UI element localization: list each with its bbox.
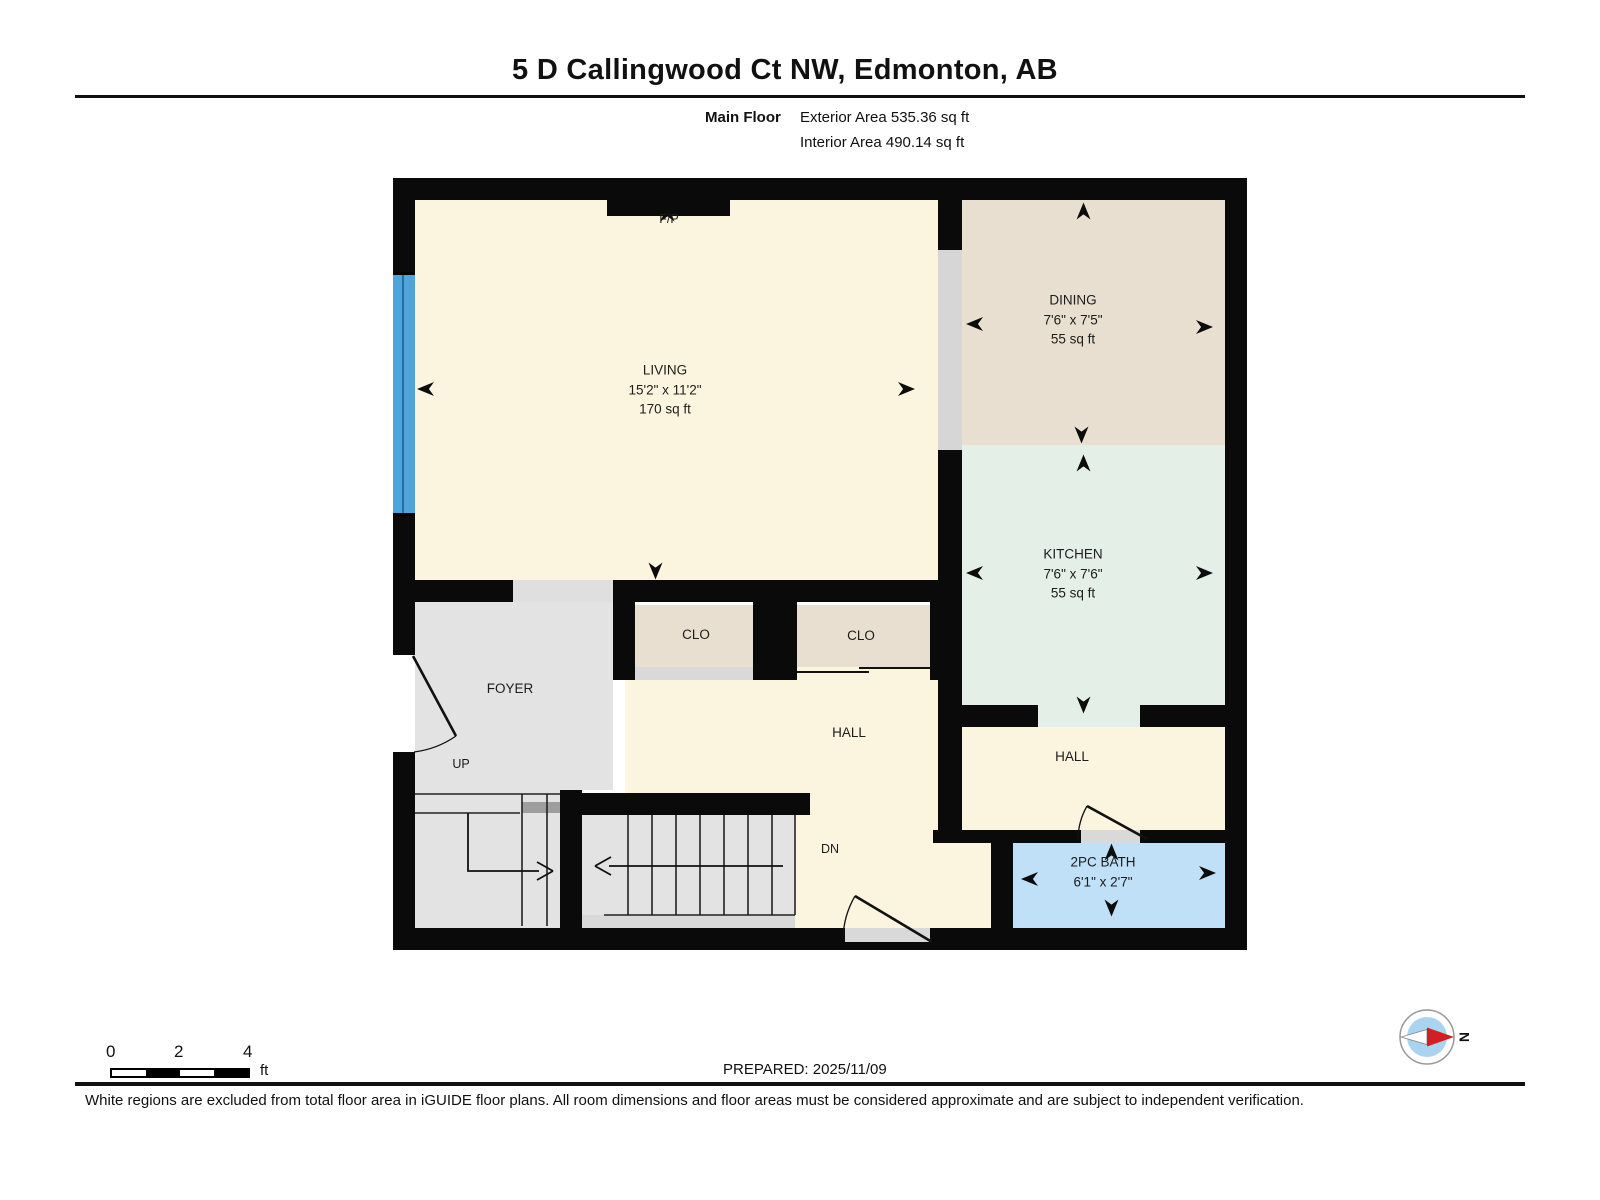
- wall-segment: [1140, 705, 1225, 727]
- stair-landing-strip: [522, 802, 560, 813]
- scale-tick-0: 0: [106, 1042, 115, 1062]
- floorplan-page: 5 D Callingwood Ct NW, Edmonton, AB Main…: [0, 0, 1600, 1200]
- room-dims: 15'2" x 11'2": [628, 380, 701, 400]
- window-pane-line: [402, 275, 404, 513]
- room-dims: 7'6" x 7'5": [1043, 310, 1102, 330]
- compass-north-label: N: [1456, 1032, 1472, 1042]
- room-area: 55 sq ft: [1043, 584, 1102, 604]
- kitchen-opening: [1038, 705, 1140, 727]
- room-name: 2PC BATH: [1070, 852, 1135, 872]
- back-door-threshold: [845, 928, 930, 942]
- room-label-foyer: FOYER: [487, 679, 534, 699]
- room-label-living: LIVING 15'2" x 11'2" 170 sq ft: [628, 361, 701, 420]
- window-icon: [393, 272, 415, 516]
- wall-segment: [393, 928, 1247, 950]
- closet1-door-track: [635, 667, 753, 680]
- floor-label: Main Floor: [705, 109, 781, 126]
- wall-segment: [930, 602, 962, 680]
- room-label-hall-center: HALL: [832, 723, 866, 743]
- room-label-dining: DINING 7'6" x 7'5" 55 sq ft: [1043, 291, 1102, 350]
- scale-segment: [112, 1070, 146, 1076]
- room-label-closet2: CLO: [847, 626, 875, 646]
- wall-segment: [393, 178, 1247, 200]
- half-wall-opening: [938, 250, 962, 450]
- wall-segment: [393, 580, 513, 602]
- room-hall-right-area: [962, 727, 1225, 830]
- compass-icon: N: [1393, 1003, 1485, 1071]
- room-area: 170 sq ft: [628, 400, 701, 420]
- room-area: 55 sq ft: [1043, 330, 1102, 350]
- wall-segment: [613, 580, 625, 680]
- scale-tick-4: 4: [243, 1042, 252, 1062]
- bath-door-threshold: [1081, 830, 1140, 843]
- scale-unit: ft: [260, 1062, 268, 1079]
- footer-divider: [75, 1082, 1525, 1086]
- room-dims: 7'6" x 7'6": [1043, 564, 1102, 584]
- scale-segment: [146, 1070, 180, 1076]
- room-label-bath: 2PC BATH 6'1" x 2'7": [1070, 852, 1135, 891]
- room-label-kitchen: KITCHEN 7'6" x 7'6" 55 sq ft: [1043, 545, 1102, 604]
- room-hall-pocket-area: [938, 843, 991, 928]
- entry-door-opening: [393, 655, 415, 752]
- room-dims: 6'1" x 2'7": [1070, 872, 1135, 892]
- wall-segment: [1140, 830, 1225, 843]
- stairs-up-label: UP: [452, 755, 469, 773]
- wall-segment: [625, 602, 635, 680]
- wall-segment: [1225, 178, 1247, 950]
- header-divider: [75, 95, 1525, 98]
- stairs-down-area: [582, 815, 795, 915]
- wall-segment: [560, 790, 582, 928]
- wall-segment: [582, 793, 810, 815]
- scale-segment: [180, 1070, 214, 1076]
- wall-segment: [753, 602, 797, 680]
- prepared-date: PREPARED: 2025/11/09: [723, 1061, 887, 1078]
- disclaimer-text: White regions are excluded from total fl…: [85, 1092, 1304, 1109]
- floor-plan: LIVING 15'2" x 11'2" 170 sq ft DINING 7'…: [393, 178, 1247, 950]
- wall-segment: [613, 580, 962, 602]
- passage-opening: [513, 580, 613, 602]
- room-label-hall-right: HALL: [1055, 747, 1089, 767]
- room-label-closet1: CLO: [682, 625, 710, 645]
- scale-segment: [214, 1070, 248, 1076]
- room-name: LIVING: [628, 361, 701, 381]
- stairs-down-label: DN: [821, 840, 839, 858]
- wall-segment: [938, 200, 962, 250]
- interior-area: Interior Area 490.14 sq ft: [800, 134, 964, 151]
- scale-tick-2: 2: [174, 1042, 183, 1062]
- room-name: KITCHEN: [1043, 545, 1102, 565]
- scale-bar-icon: [110, 1068, 250, 1078]
- room-name: DINING: [1043, 291, 1102, 311]
- wall-segment: [938, 705, 1038, 727]
- page-title: 5 D Callingwood Ct NW, Edmonton, AB: [0, 54, 1570, 87]
- wall-segment: [991, 830, 1013, 928]
- stairs-down-strip: [582, 915, 795, 928]
- exterior-area: Exterior Area 535.36 sq ft: [800, 109, 969, 126]
- fireplace-label: F/P: [659, 210, 678, 228]
